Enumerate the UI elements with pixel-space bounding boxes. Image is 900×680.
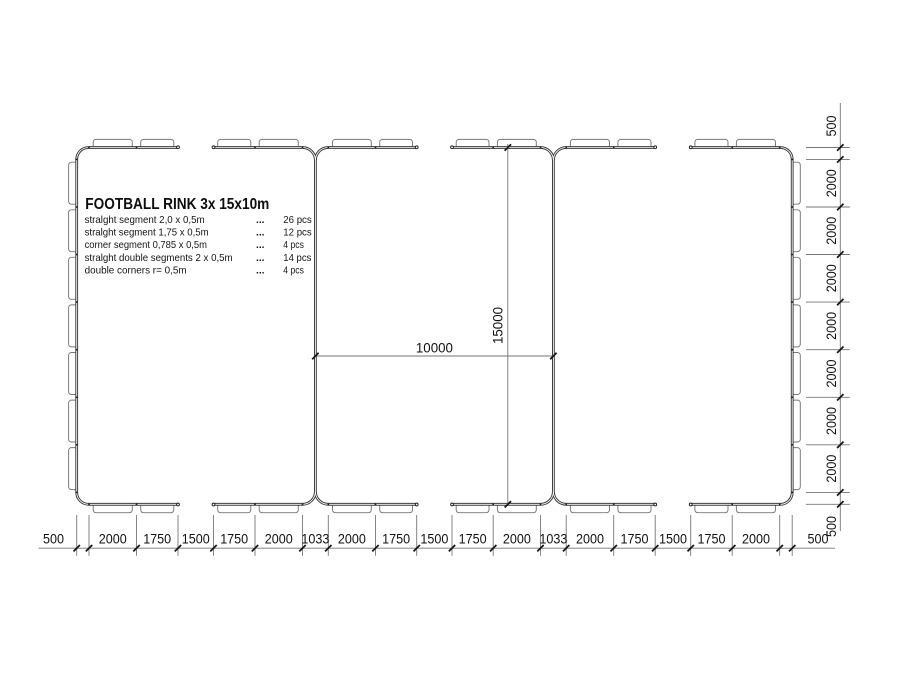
svg-text:1750: 1750 [459, 532, 487, 547]
svg-text:...: ... [256, 265, 265, 276]
svg-text:2000: 2000 [824, 264, 839, 292]
svg-text:1033: 1033 [539, 532, 567, 547]
svg-text:14 pcs: 14 pcs [283, 253, 311, 264]
svg-text:1500: 1500 [659, 532, 687, 547]
svg-text:1500: 1500 [182, 532, 210, 547]
svg-text:4 pcs: 4 pcs [283, 240, 304, 251]
svg-text:...: ... [256, 240, 265, 251]
svg-text:500: 500 [824, 116, 839, 137]
svg-text:10000: 10000 [416, 340, 453, 355]
svg-text:FOOTBALL RINK 3x 15x10m: FOOTBALL RINK 3x 15x10m [85, 196, 269, 213]
svg-text:1500: 1500 [420, 532, 448, 547]
svg-text:2000: 2000 [824, 217, 839, 245]
svg-text:2000: 2000 [503, 532, 531, 547]
svg-text:double corners r= 0,5m: double corners r= 0,5m [85, 265, 187, 276]
svg-text:stralght double segments 2 x 0: stralght double segments 2 x 0,5m [85, 253, 233, 264]
svg-text:500: 500 [824, 516, 839, 537]
svg-text:1750: 1750 [698, 532, 726, 547]
svg-text:4 pcs: 4 pcs [283, 265, 304, 276]
svg-text:2000: 2000 [824, 360, 839, 388]
svg-text:2000: 2000 [742, 532, 770, 547]
svg-text:1750: 1750 [621, 532, 649, 547]
svg-text:stralght segment 1,75 x 0,5m: stralght segment 1,75 x 0,5m [85, 228, 209, 239]
svg-text:12 pcs: 12 pcs [283, 228, 311, 239]
svg-text:15000: 15000 [490, 307, 505, 344]
svg-text:...: ... [256, 228, 265, 239]
svg-text:2000: 2000 [824, 312, 839, 340]
svg-text:1033: 1033 [301, 532, 329, 547]
svg-text:corner segment 0,785 x 0,5m: corner segment 0,785 x 0,5m [85, 240, 207, 251]
svg-text:2000: 2000 [338, 532, 366, 547]
svg-text:2000: 2000 [265, 532, 293, 547]
svg-text:2000: 2000 [824, 455, 839, 483]
svg-text:stralght segment 2,0 x 0,5m: stralght segment 2,0 x 0,5m [85, 215, 205, 226]
svg-text:2000: 2000 [824, 169, 839, 197]
svg-text:2000: 2000 [576, 532, 604, 547]
svg-text:...: ... [256, 215, 265, 226]
svg-text:500: 500 [43, 532, 64, 547]
svg-text:1750: 1750 [220, 532, 248, 547]
svg-text:2000: 2000 [99, 532, 127, 547]
svg-text:1750: 1750 [382, 532, 410, 547]
svg-text:1750: 1750 [143, 532, 171, 547]
svg-text:26 pcs: 26 pcs [283, 215, 311, 226]
svg-text:2000: 2000 [824, 407, 839, 435]
svg-text:...: ... [256, 253, 265, 264]
